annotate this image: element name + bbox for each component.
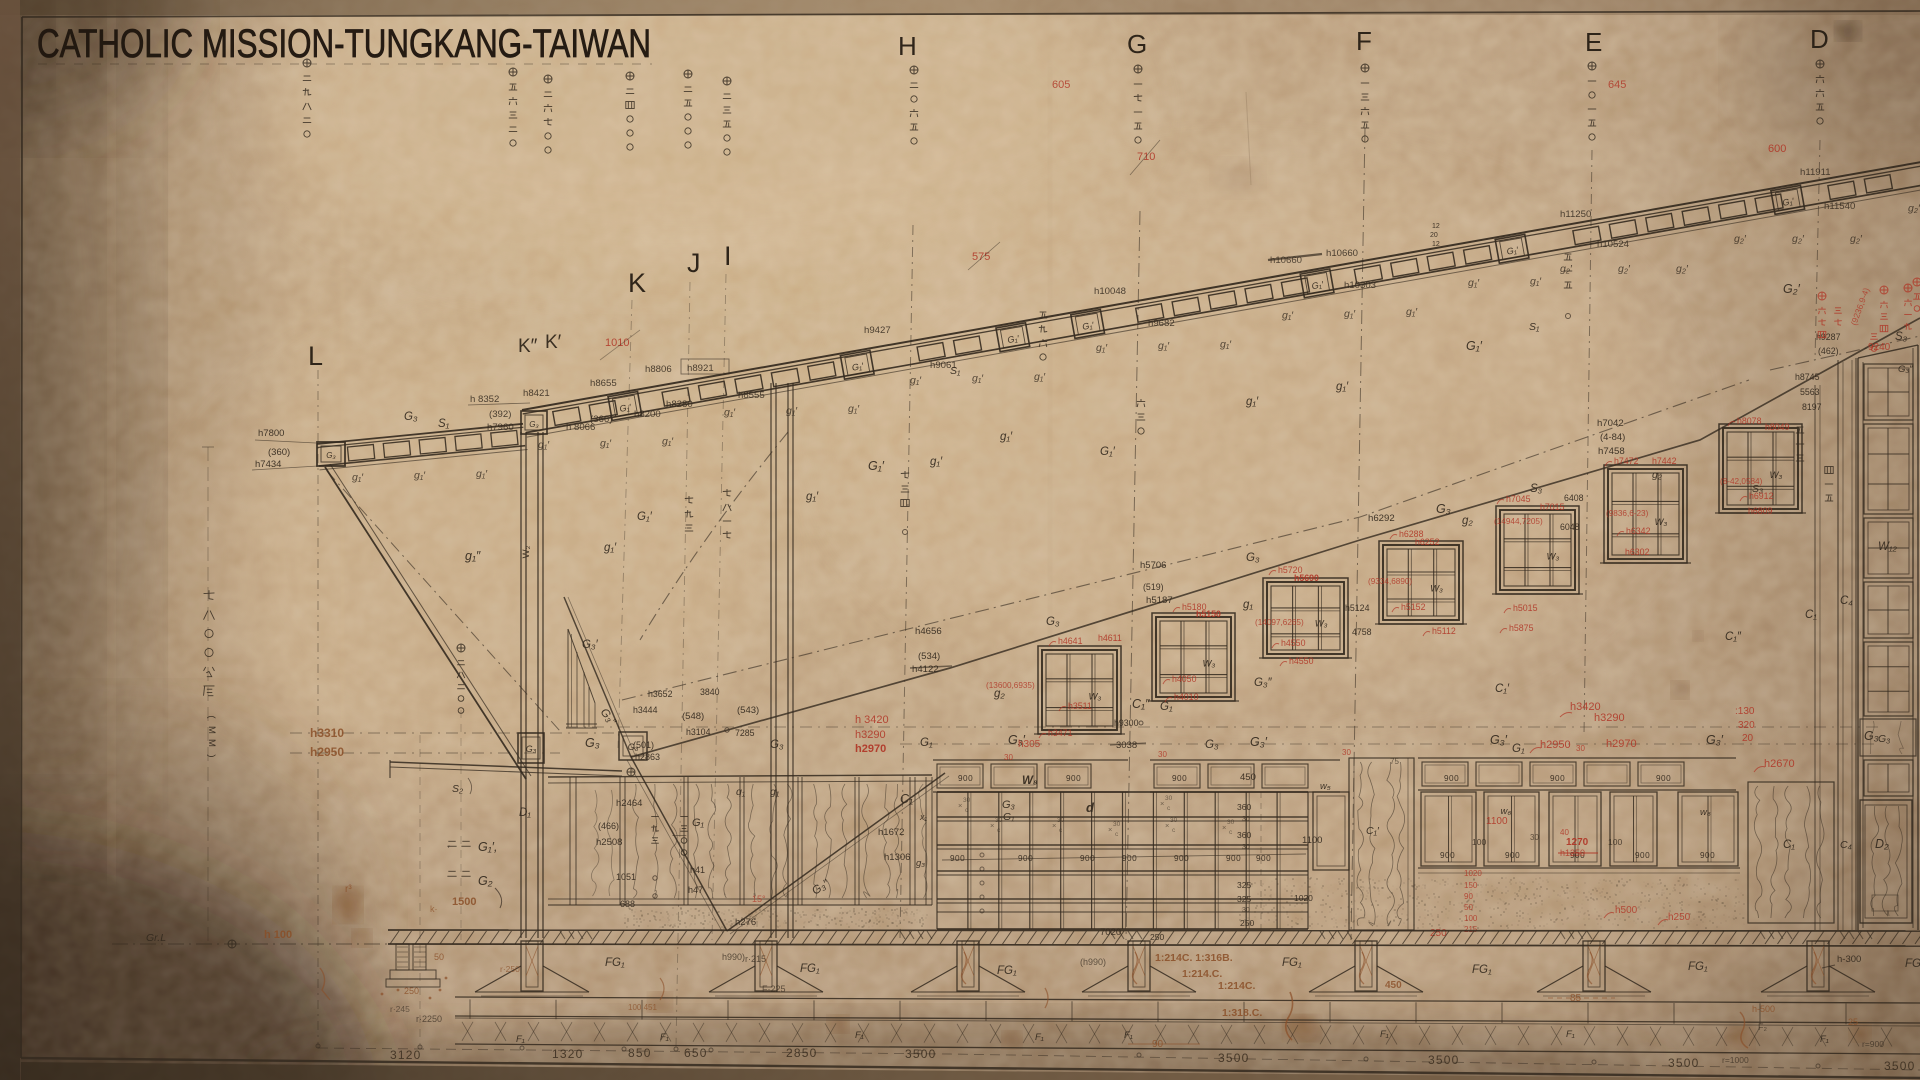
- svg-text:(4-84): (4-84): [1600, 432, 1625, 443]
- svg-text:12: 12: [1432, 241, 1440, 248]
- svg-text:g₂′: g₂′: [1850, 233, 1863, 245]
- svg-text:h500: h500: [1615, 905, 1638, 916]
- svg-text:h10660: h10660: [1326, 248, 1358, 259]
- svg-text:1:214C. 1:316B.: 1:214C. 1:316B.: [1155, 952, 1233, 964]
- svg-text:×: ×: [1222, 823, 1226, 832]
- svg-text:h1672: h1672: [878, 827, 904, 838]
- svg-text:g₂: g₂: [1652, 469, 1662, 481]
- svg-text:D₁: D₁: [519, 807, 531, 819]
- svg-text:G₁′: G₁′: [868, 459, 885, 473]
- svg-text:605: 605: [1052, 79, 1070, 91]
- svg-text:h2970: h2970: [1606, 738, 1637, 750]
- svg-text:(462): (462): [1818, 346, 1839, 356]
- svg-text:FG₁: FG₁: [1472, 964, 1492, 976]
- svg-text:1:214C.: 1:214C.: [1218, 980, 1255, 992]
- svg-text:G₂′: G₂′: [1783, 282, 1800, 296]
- svg-text:g₁′: g₁′: [1530, 275, 1542, 287]
- svg-text:g₂′: g₂′: [1792, 233, 1805, 245]
- svg-text:G₃′: G₃′: [1706, 733, 1724, 747]
- svg-text:900: 900: [1256, 854, 1271, 863]
- svg-text:G₂: G₂: [478, 874, 493, 888]
- svg-text:(h990): (h990): [1080, 957, 1106, 967]
- svg-text:g₁′: g₁′: [1246, 396, 1259, 408]
- svg-text:15°: 15°: [752, 894, 766, 904]
- svg-text:F·225: F·225: [762, 984, 786, 994]
- svg-text:CATHOLIC MISSION-TUNGKANG-TAIW: CATHOLIC MISSION-TUNGKANG-TAIWAN: [37, 22, 651, 66]
- svg-text:h10524: h10524: [1597, 239, 1630, 250]
- svg-text:h7960: h7960: [487, 422, 514, 433]
- svg-text:h7472: h7472: [1614, 456, 1639, 466]
- svg-text:F₂: F₂: [1758, 1022, 1767, 1032]
- svg-text:r=1000: r=1000: [1722, 1055, 1749, 1065]
- svg-text:g₁′: g₁′: [848, 403, 860, 415]
- svg-text:S₃: S₃: [1895, 331, 1908, 343]
- svg-text:k·: k·: [430, 904, 438, 914]
- svg-text:C₁: C₁: [1783, 839, 1795, 851]
- svg-text:g₁′: g₁′: [1034, 371, 1046, 383]
- svg-text:C₁: C₁: [900, 792, 913, 806]
- svg-text:1500: 1500: [452, 896, 476, 908]
- svg-text:C₄: C₄: [1840, 839, 1852, 851]
- svg-text:h-300: h-300: [1837, 954, 1861, 965]
- svg-text:30: 30: [1576, 744, 1585, 753]
- svg-text:FG₁: FG₁: [1688, 961, 1708, 973]
- svg-text:×: ×: [990, 821, 994, 830]
- svg-text:30: 30: [1158, 750, 1167, 759]
- svg-text:h2464: h2464: [616, 798, 642, 809]
- svg-text:3120: 3120: [390, 1048, 422, 1062]
- svg-text::130: :130: [1735, 706, 1755, 717]
- svg-text:h 100: h 100: [264, 929, 292, 941]
- svg-text:x₁: x₁: [919, 812, 927, 822]
- svg-text:30: 30: [1242, 844, 1250, 851]
- svg-text:h6342: h6342: [1626, 526, 1651, 536]
- svg-text:100: 100: [1608, 837, 1622, 847]
- svg-text:⸺: ⸺: [672, 830, 687, 840]
- svg-text:(9836,6-23): (9836,6-23): [1606, 509, 1649, 518]
- svg-text:900: 900: [1550, 774, 1565, 783]
- svg-text:h7042: h7042: [1597, 418, 1624, 429]
- svg-text:G₃: G₃: [526, 744, 537, 754]
- svg-text:g₁′: g₁′: [1000, 431, 1013, 443]
- svg-text:D₂: D₂: [1875, 837, 1889, 851]
- svg-text:G₃: G₃: [1002, 799, 1016, 811]
- svg-text:h3310: h3310: [310, 726, 344, 740]
- svg-text:1:318.C.: 1:318.C.: [1222, 1007, 1262, 1019]
- svg-text:r³: r³: [345, 884, 352, 895]
- svg-text:1051: 1051: [616, 872, 636, 882]
- svg-text:W₃: W₃: [1315, 619, 1328, 630]
- svg-text:h4050: h4050: [1172, 674, 1197, 684]
- svg-text:h2508: h2508: [596, 837, 622, 848]
- svg-text:h3652: h3652: [648, 689, 673, 699]
- svg-text:g₁′: g₁′: [600, 437, 612, 449]
- svg-text:×: ×: [958, 801, 962, 810]
- svg-text:325: 325: [1237, 894, 1251, 904]
- svg-text:G₃″: G₃″: [1898, 364, 1913, 375]
- svg-text:G₃′: G₃′: [1490, 733, 1508, 747]
- svg-text:h11911: h11911: [1800, 167, 1831, 178]
- svg-text:F: F: [1356, 26, 1372, 56]
- svg-text:h41: h41: [690, 865, 705, 875]
- svg-text:h5706: h5706: [1140, 560, 1166, 571]
- svg-text:h8078: h8078: [1737, 416, 1762, 426]
- svg-text:900: 900: [1505, 851, 1520, 860]
- svg-text:h5690: h5690: [1294, 573, 1319, 583]
- svg-text:g₁′: g₁′: [1096, 342, 1108, 354]
- svg-text:q₁: q₁: [736, 786, 746, 798]
- svg-text:900: 900: [958, 774, 973, 783]
- svg-text:F₁: F₁: [1035, 1032, 1044, 1043]
- svg-text:g₁′: g₁′: [1282, 310, 1294, 322]
- svg-text:W₈: W₈: [1022, 775, 1038, 787]
- svg-text:g₁′: g₁′: [604, 542, 617, 554]
- svg-text:g₁′: g₁′: [1336, 381, 1349, 393]
- svg-text:G₁: G₁: [1512, 743, 1525, 755]
- svg-text:S₁: S₁: [438, 418, 450, 430]
- svg-text:G₁′: G₁′: [1007, 333, 1020, 345]
- svg-text:g₁′: g₁′: [1406, 306, 1418, 318]
- svg-text:h5187: h5187: [1146, 595, 1173, 606]
- svg-text:h8280: h8280: [666, 399, 693, 410]
- svg-text:(392): (392): [489, 409, 511, 420]
- svg-text:h6912: h6912: [1749, 491, 1774, 501]
- svg-text:C₄: C₄: [1840, 595, 1853, 607]
- svg-text:g₂: g₂: [1462, 515, 1473, 527]
- svg-text:W₃: W₃: [1430, 584, 1443, 595]
- svg-text:W₂: W₂: [521, 545, 532, 558]
- svg-text:250: 250: [1240, 918, 1254, 928]
- svg-text:h10303: h10303: [1344, 280, 1376, 291]
- svg-text:G₁′: G₁′: [1466, 339, 1483, 353]
- svg-text:G₃: G₃: [1205, 739, 1219, 751]
- svg-text:h7015: h7015: [1540, 502, 1565, 512]
- svg-text:W₁₂: W₁₂: [1878, 541, 1897, 553]
- svg-text:K: K: [628, 268, 646, 298]
- svg-text:h8200: h8200: [634, 409, 661, 420]
- svg-text:h2970: h2970: [855, 743, 886, 755]
- svg-text:G₁′: G₁′: [1782, 196, 1795, 208]
- svg-text:K′: K′: [545, 332, 562, 353]
- svg-text:645: 645: [1608, 79, 1626, 91]
- svg-text:900: 900: [1635, 851, 1650, 860]
- svg-text:F₁: F₁: [1566, 1029, 1575, 1040]
- svg-text:F₁: F₁: [1820, 1034, 1829, 1045]
- svg-text:h9287: h9287: [1816, 332, 1841, 342]
- svg-text:30: 30: [1057, 817, 1065, 824]
- svg-text:h4550: h4550: [1289, 656, 1314, 666]
- svg-text:30: 30: [1165, 795, 1173, 802]
- svg-text:h6809: h6809: [1748, 506, 1773, 516]
- svg-text:r·250: r·250: [500, 964, 520, 974]
- svg-text:250: 250: [404, 986, 419, 996]
- svg-text:G₃′: G₃′: [1250, 735, 1268, 749]
- svg-text:25: 25: [1848, 1017, 1858, 1027]
- svg-text:90: 90: [1152, 1039, 1164, 1050]
- svg-text:100: 100: [1464, 914, 1478, 923]
- svg-text:G₁′: G₁′: [851, 361, 864, 373]
- svg-text:G₁′: G₁′: [1081, 320, 1094, 332]
- svg-text:900: 900: [1066, 774, 1081, 783]
- svg-text:30: 30: [1004, 753, 1013, 762]
- svg-text:M: M: [206, 726, 217, 734]
- svg-text:h8806: h8806: [645, 364, 672, 375]
- svg-text:h47: h47: [688, 885, 703, 895]
- svg-text:g₁′: g₁′: [1158, 340, 1170, 352]
- svg-text:g₁′: g₁′: [1220, 338, 1232, 350]
- svg-text:h 3420: h 3420: [855, 714, 889, 726]
- svg-text:h3290: h3290: [1594, 712, 1625, 724]
- svg-text:g₂′: g₂′: [1676, 263, 1689, 275]
- svg-text:G₃: G₃: [1878, 733, 1890, 745]
- svg-text:G₁′: G₁′: [637, 511, 653, 523]
- svg-text:150: 150: [1464, 881, 1478, 890]
- svg-text:g₁′: g₁′: [1344, 308, 1356, 320]
- svg-text:h3511: h3511: [1068, 701, 1092, 711]
- svg-text:F₁: F₁: [855, 1030, 864, 1041]
- svg-text:h4641: h4641: [1058, 636, 1083, 646]
- svg-text:h5112: h5112: [1432, 626, 1456, 636]
- svg-text:4758: 4758: [1352, 627, 1372, 637]
- svg-text:G₁: G₁: [1160, 701, 1173, 713]
- svg-text:L: L: [308, 341, 323, 371]
- svg-text:h8049: h8049: [1765, 422, 1790, 432]
- svg-text:20: 20: [1430, 232, 1438, 239]
- svg-text:h8555: h8555: [738, 390, 765, 401]
- svg-text:g₁: g₁: [1243, 599, 1253, 611]
- svg-text:g₂′: g₂′: [1560, 263, 1573, 275]
- svg-text:710: 710: [1137, 151, 1155, 163]
- svg-text:(9334,6890): (9334,6890): [1368, 577, 1412, 586]
- svg-text:h-500: h-500: [1752, 1004, 1775, 1014]
- svg-text:3500: 3500: [1884, 1059, 1916, 1073]
- svg-text:C₁: C₁: [1805, 609, 1817, 621]
- svg-text:g₂′: g₂′: [1908, 203, 1920, 215]
- svg-text:2850: 2850: [786, 1046, 818, 1060]
- svg-text:F₁: F₁: [516, 1034, 525, 1045]
- svg-text:d: d: [1086, 800, 1095, 815]
- svg-text:S₃: S₃: [1530, 483, 1543, 495]
- svg-text:215: 215: [1464, 925, 1478, 934]
- svg-text:(366): (366): [590, 414, 612, 425]
- svg-text:h5875: h5875: [1509, 623, 1534, 633]
- svg-text:1020: 1020: [1294, 893, 1313, 903]
- svg-text:40: 40: [1560, 828, 1569, 837]
- svg-text:900: 900: [1122, 854, 1137, 863]
- svg-text:85: 85: [1570, 993, 1582, 1004]
- svg-text:h7442: h7442: [1652, 456, 1677, 466]
- svg-text:30: 30: [1227, 819, 1235, 826]
- svg-text:I: I: [724, 241, 732, 271]
- svg-text:900: 900: [1172, 774, 1187, 783]
- svg-text:h3104: h3104: [686, 727, 711, 737]
- svg-text:G₁′: G₁′: [619, 402, 632, 414]
- svg-text:G₃: G₃: [404, 411, 418, 423]
- svg-text:h9427: h9427: [864, 325, 891, 336]
- svg-text:900: 900: [1440, 851, 1455, 860]
- svg-text:h7800: h7800: [258, 428, 284, 439]
- svg-text:G₃: G₃: [1864, 729, 1879, 743]
- svg-text:30: 30: [1242, 907, 1250, 914]
- svg-text:h8745: h8745: [1795, 372, 1820, 382]
- svg-text:r=900: r=900: [1862, 1039, 1884, 1049]
- svg-text:(14097,6265): (14097,6265): [1255, 618, 1304, 627]
- svg-text:W₃: W₃: [1203, 659, 1216, 670]
- svg-text:g₁′: g₁′: [972, 373, 984, 385]
- svg-text:F₁: F₁: [1124, 1030, 1133, 1041]
- svg-text:h11540: h11540: [1824, 201, 1855, 212]
- svg-text:C₁″: C₁″: [1725, 631, 1742, 643]
- svg-text:h8421: h8421: [523, 388, 550, 399]
- svg-text:F₁: F₁: [1380, 1029, 1389, 1040]
- svg-text:×: ×: [1165, 821, 1169, 830]
- svg-text:6048: 6048: [1560, 522, 1580, 532]
- svg-text:G₁′: G₁′: [1311, 279, 1324, 291]
- svg-text:h276: h276: [735, 917, 756, 928]
- svg-text:h250: h250: [1668, 912, 1691, 923]
- svg-text:(548): (548): [682, 711, 704, 722]
- svg-text:(13600,6935): (13600,6935): [986, 681, 1035, 690]
- svg-text:g₁′: g₁′: [352, 471, 364, 483]
- svg-text:h4611: h4611: [1098, 633, 1122, 643]
- svg-text:(519): (519): [1143, 582, 1164, 592]
- svg-text:(360): (360): [268, 447, 290, 458]
- svg-text:g₁′: g₁′: [538, 439, 550, 451]
- svg-text:M: M: [206, 739, 217, 747]
- svg-text:h5152: h5152: [1401, 602, 1426, 612]
- svg-text:Gr.L: Gr.L: [146, 932, 166, 944]
- svg-text:w₆: w₆: [1700, 807, 1711, 818]
- svg-text:G₃: G₃: [326, 451, 335, 460]
- svg-text:D: D: [1810, 24, 1829, 54]
- svg-text:7285: 7285: [735, 728, 755, 738]
- svg-text:h9300: h9300: [1114, 718, 1139, 728]
- svg-text:S₁: S₁: [1529, 321, 1540, 333]
- svg-text:450: 450: [1385, 980, 1402, 991]
- svg-text:h3471: h3471: [1048, 728, 1073, 738]
- svg-text:1320: 1320: [552, 1047, 584, 1061]
- svg-text:G₃″: G₃″: [1254, 677, 1273, 689]
- svg-text:w₅: w₅: [1320, 781, 1331, 792]
- svg-text:688: 688: [620, 899, 635, 909]
- svg-text:h7045: h7045: [1506, 494, 1531, 504]
- svg-text:900: 900: [1656, 774, 1671, 783]
- svg-text:g₁′: g₁′: [910, 374, 922, 386]
- svg-text:G₃: G₃: [628, 742, 639, 752]
- svg-text:h9061: h9061: [930, 360, 957, 371]
- svg-text:h8921: h8921: [687, 363, 714, 374]
- svg-text:1100: 1100: [1486, 816, 1508, 827]
- svg-text:FG₁: FG₁: [1282, 957, 1302, 969]
- svg-text:900: 900: [1700, 851, 1715, 860]
- svg-text:FG₁: FG₁: [800, 963, 820, 975]
- svg-text:g₁″: g₁″: [465, 549, 481, 563]
- svg-text:100: 100: [1472, 837, 1486, 847]
- svg-text:850: 850: [628, 1046, 652, 1060]
- svg-text:h990): h990): [722, 952, 745, 962]
- svg-text:h4010: h4010: [1174, 692, 1199, 702]
- svg-text:G₁′,: G₁′,: [478, 840, 497, 854]
- svg-text:(543): (543): [737, 705, 759, 716]
- svg-text:h3290: h3290: [855, 729, 886, 741]
- svg-text:FG₁: FG₁: [997, 965, 1017, 977]
- svg-text:1270: 1270: [1566, 837, 1589, 848]
- svg-text:FG₁: FG₁: [1905, 958, 1920, 970]
- svg-text:30: 30: [1530, 833, 1539, 842]
- svg-text:6408: 6408: [1564, 493, 1584, 503]
- svg-text:h3444: h3444: [633, 705, 658, 715]
- svg-text:3500: 3500: [1428, 1053, 1460, 1067]
- svg-text:30: 30: [1113, 821, 1121, 828]
- svg-text:12: 12: [1432, 223, 1440, 230]
- svg-text:h2670: h2670: [1764, 758, 1795, 770]
- svg-text:h11250: h11250: [1560, 209, 1591, 220]
- svg-text:360: 360: [1237, 830, 1251, 840]
- svg-text:600: 600: [1768, 143, 1786, 155]
- svg-text:g₁′: g₁′: [662, 435, 674, 447]
- svg-text:×: ×: [1160, 799, 1164, 808]
- svg-text:G₃: G₃: [770, 739, 784, 751]
- svg-text:h9682: h9682: [1148, 318, 1175, 329]
- svg-text:G₃: G₃: [1246, 552, 1260, 564]
- svg-text:8197: 8197: [1802, 402, 1822, 412]
- svg-text:g₁′: g₁′: [414, 470, 426, 482]
- svg-text:×: ×: [1052, 821, 1056, 830]
- svg-text:E: E: [1585, 27, 1602, 57]
- svg-text:3500: 3500: [1668, 1056, 1700, 1070]
- svg-text:W₃: W₃: [1547, 552, 1560, 563]
- svg-text:J: J: [687, 248, 701, 278]
- svg-text:G₁: G₁: [920, 737, 933, 749]
- svg-text:360: 360: [1237, 802, 1251, 812]
- svg-text:S₂: S₂: [452, 783, 463, 795]
- svg-text:g₁′: g₁′: [476, 468, 488, 480]
- svg-text:30: 30: [1342, 748, 1351, 757]
- svg-text:K″: K″: [518, 336, 538, 357]
- svg-text:(466): (466): [598, 821, 619, 831]
- svg-text:h5150: h5150: [1196, 609, 1221, 619]
- svg-text:g₂′: g₂′: [1618, 263, 1631, 275]
- svg-text:h2950: h2950: [1540, 739, 1571, 751]
- svg-text:C₁′: C₁′: [1495, 683, 1510, 695]
- svg-text:3500: 3500: [1218, 1051, 1250, 1065]
- svg-text:G₁′: G₁′: [1100, 446, 1116, 458]
- svg-text:h4122: h4122: [912, 664, 939, 675]
- svg-text:g₁′: g₁′: [724, 407, 736, 419]
- svg-text:1100: 1100: [1302, 835, 1322, 846]
- svg-text:450: 450: [1240, 772, 1256, 783]
- svg-text:h6252: h6252: [1415, 537, 1440, 547]
- svg-text:30: 30: [963, 797, 971, 804]
- svg-text:3038: 3038: [1116, 740, 1137, 751]
- svg-text:h 8352: h 8352: [470, 394, 499, 405]
- svg-text:FG₁: FG₁: [605, 957, 625, 969]
- svg-text:C₁′: C₁′: [1366, 825, 1380, 837]
- svg-text:100 451: 100 451: [628, 1003, 657, 1012]
- svg-text:900: 900: [1444, 774, 1459, 783]
- svg-text:900: 900: [1174, 854, 1189, 863]
- svg-text:3500: 3500: [905, 1047, 937, 1061]
- svg-text:h4656: h4656: [915, 626, 942, 637]
- svg-text:30: 30: [995, 817, 1003, 824]
- svg-text:): ): [206, 754, 217, 757]
- svg-text:h6302: h6302: [1625, 547, 1650, 557]
- svg-text:W₃: W₃: [1655, 517, 1668, 528]
- svg-text:×: ×: [1108, 825, 1112, 834]
- svg-text:1020: 1020: [1464, 869, 1482, 878]
- svg-text:W₃: W₃: [1770, 470, 1783, 481]
- svg-text:30: 30: [1242, 816, 1250, 823]
